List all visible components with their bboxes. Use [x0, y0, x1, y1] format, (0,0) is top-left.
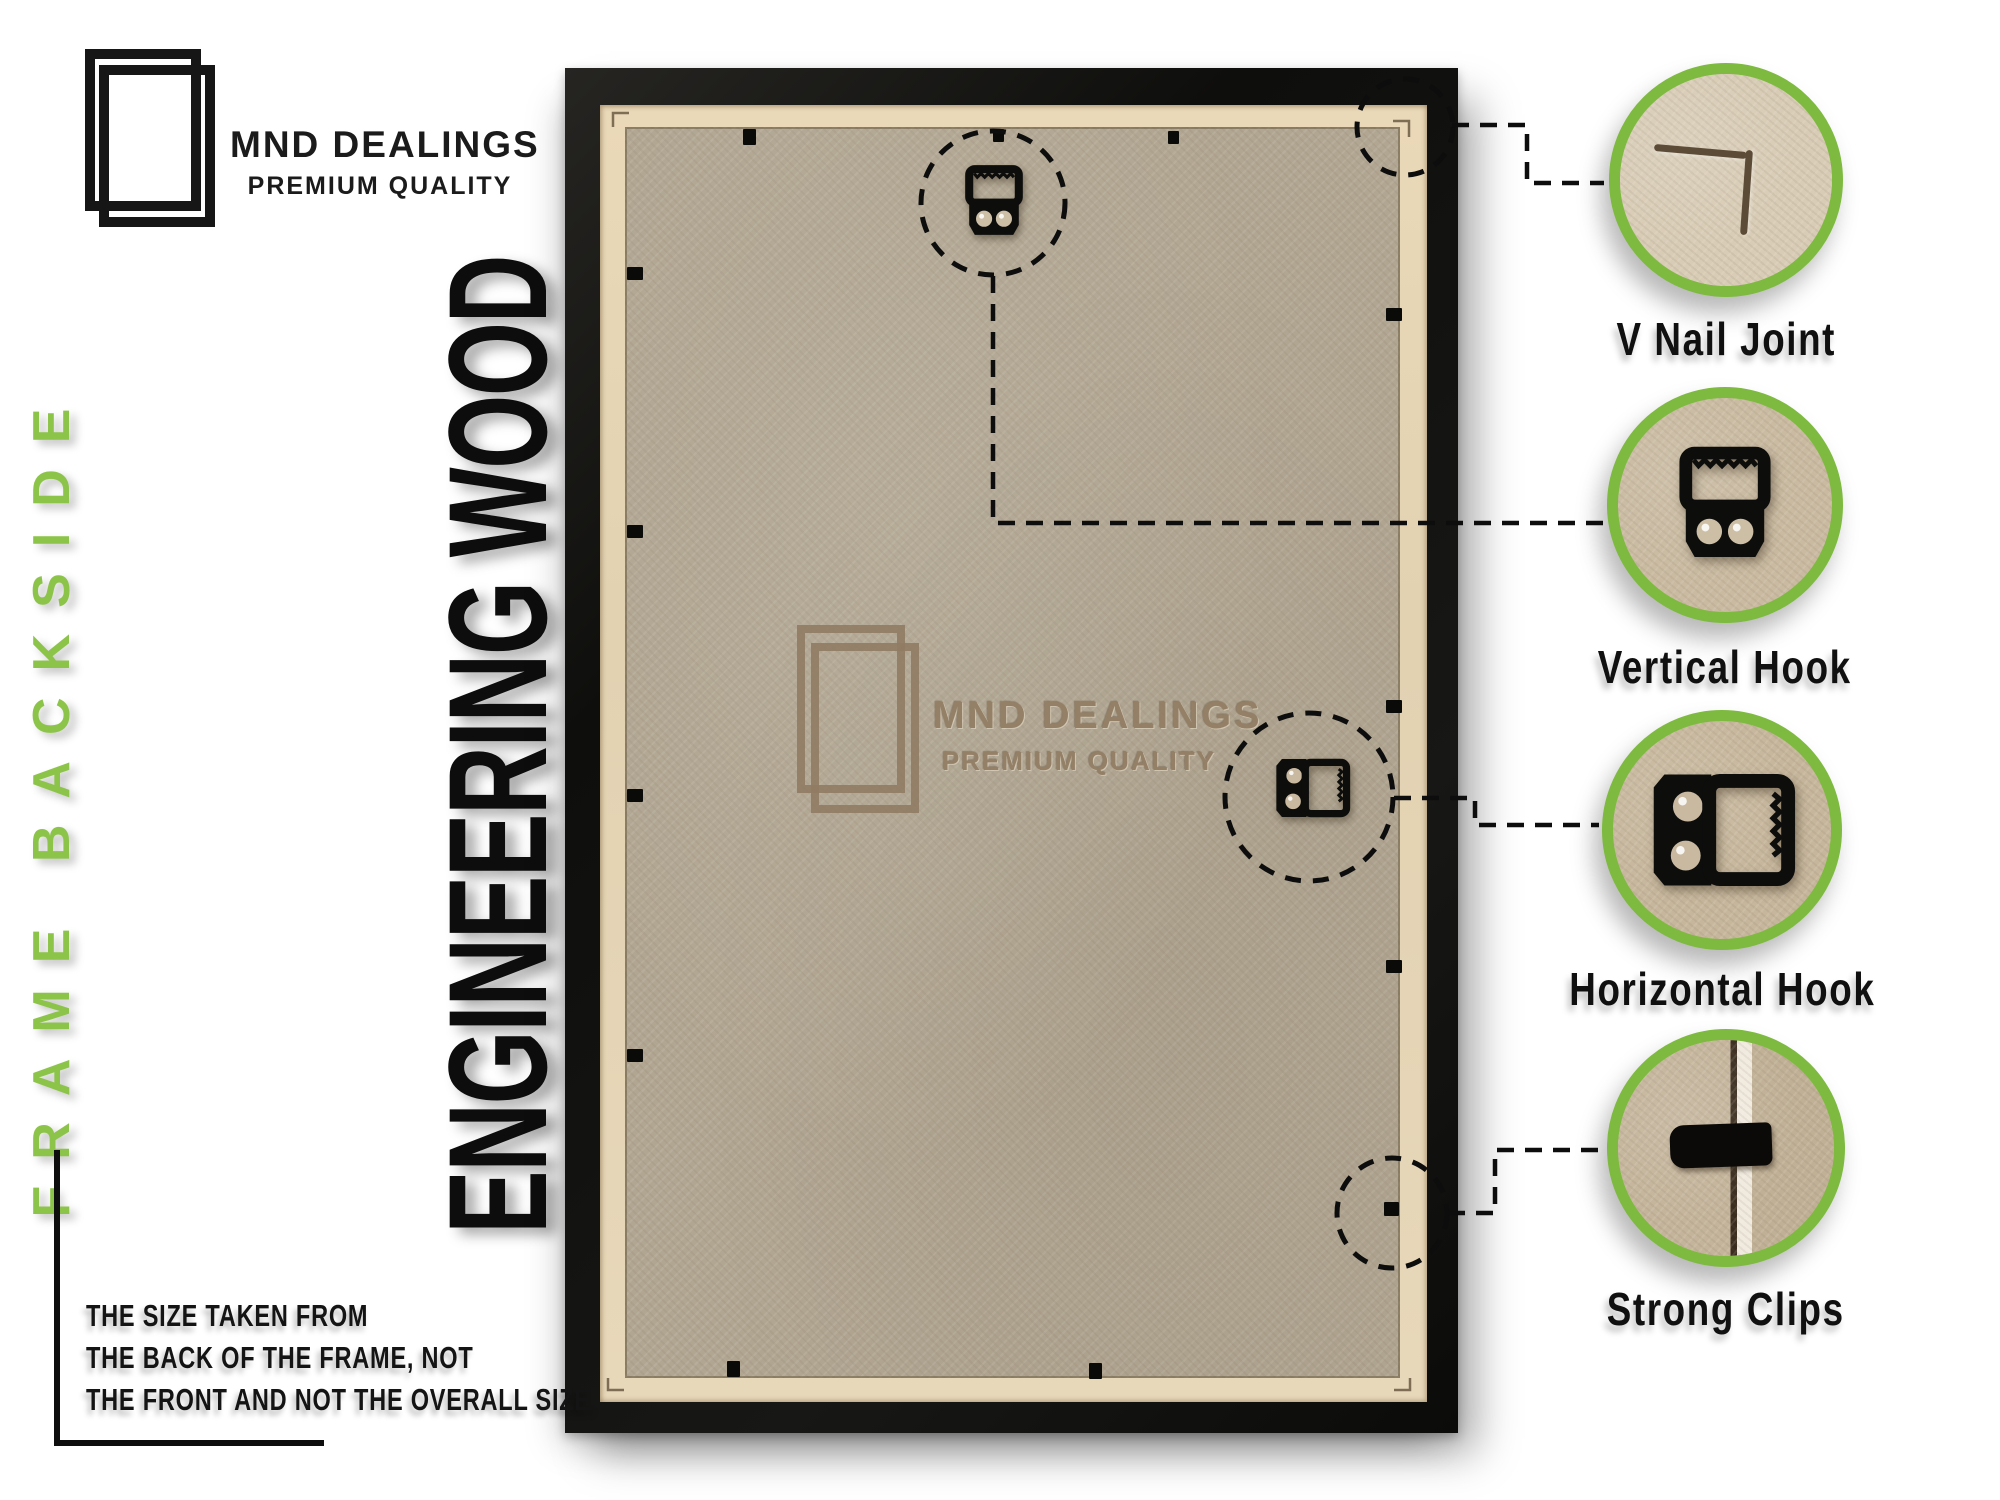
leader-strong-clips	[1448, 1150, 1604, 1213]
clip	[627, 525, 643, 538]
watermark-text: MND DEALINGS PREMIUM QUALITY	[933, 695, 1225, 777]
clip	[627, 1049, 643, 1062]
frame-logo-icon	[82, 46, 216, 234]
engineering-wood-label: ENGINEERING WOOD	[423, 265, 573, 1225]
frame-backside-label: FRAME BACKSIDE	[22, 390, 82, 1210]
clip	[993, 129, 1004, 142]
watermark: MND DEALINGS PREMIUM QUALITY	[795, 623, 1225, 833]
size-note-line: THE FRONT AND NOT THE OVERALL SIZE.	[86, 1382, 760, 1424]
watermark-tagline: PREMIUM QUALITY	[933, 746, 1225, 777]
callout-label-strong-clips: Strong Clips	[1526, 1282, 1926, 1336]
brand-text: MND DEALINGS PREMIUM QUALITY	[230, 124, 530, 201]
leader-v-nail-joint	[1452, 125, 1604, 183]
size-note-line: THE SIZE TAKEN FROM	[86, 1298, 760, 1340]
mdf-back-board: MND DEALINGS PREMIUM QUALITY	[625, 127, 1400, 1378]
clip	[627, 789, 643, 802]
size-note-line: THE BACK OF THE FRAME, NOT	[86, 1340, 760, 1382]
clip	[743, 129, 756, 145]
callout-circle-horizontal-hook	[1602, 710, 1842, 950]
clip	[1168, 131, 1179, 144]
vertical-hook-photo	[1618, 398, 1832, 612]
clip	[627, 267, 643, 280]
brand-tagline: PREMIUM QUALITY	[230, 172, 530, 201]
clip-icon	[1669, 1122, 1772, 1169]
frame-backside-photo: MND DEALINGS PREMIUM QUALITY	[565, 68, 1458, 1433]
clip	[1386, 308, 1402, 321]
watermark-name: MND DEALINGS	[933, 695, 1225, 738]
vertical-hook-icon	[1676, 445, 1774, 565]
clip	[1384, 1202, 1399, 1216]
clip	[1386, 960, 1402, 973]
watermark-frame-logo-icon	[795, 623, 923, 823]
poster: MND DEALINGS PREMIUM QUALITY FRAME BACKS…	[0, 0, 2000, 1500]
brand-logo: MND DEALINGS PREMIUM QUALITY	[82, 46, 530, 234]
vertical-hook-icon	[963, 163, 1025, 241]
callout-label-vertical-hook: Vertical Hook	[1525, 640, 1925, 694]
brand-name: MND DEALINGS	[230, 124, 530, 166]
size-note: THE SIZE TAKEN FROM THE BACK OF THE FRAM…	[86, 1298, 760, 1424]
horizontal-hook-icon	[1647, 766, 1797, 894]
callout-label-horizontal-hook: Horizontal Hook	[1522, 962, 1922, 1016]
horizontal-hook-photo	[1613, 721, 1831, 939]
clip	[1089, 1363, 1102, 1379]
callout-label-v-nail-joint: V Nail Joint	[1526, 312, 1926, 366]
callout-circle-v-nail-joint	[1609, 63, 1843, 297]
callout-circle-vertical-hook	[1607, 387, 1843, 623]
clip	[1386, 700, 1402, 713]
horizontal-hook-icon	[1273, 754, 1351, 822]
callout-circle-strong-clips	[1607, 1029, 1845, 1267]
